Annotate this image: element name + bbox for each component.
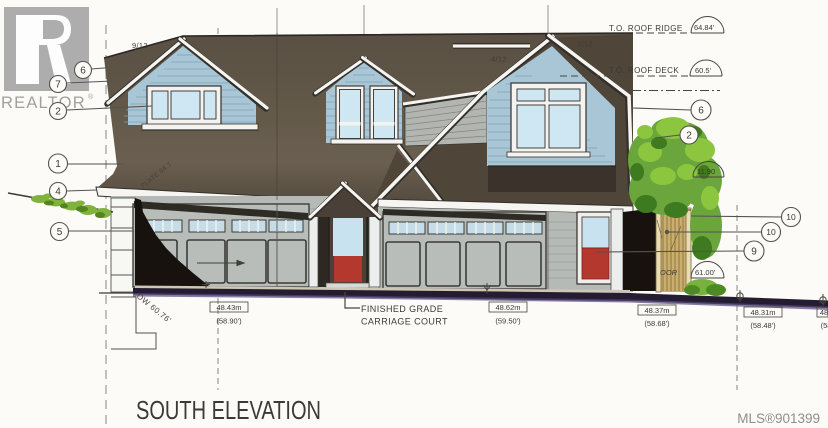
svg-text:48.31m: 48.31m [750, 308, 775, 317]
svg-text:6: 6 [80, 66, 86, 77]
svg-text:48: 48 [820, 308, 828, 317]
svg-text:®: ® [88, 93, 94, 101]
svg-text:11.90: 11.90 [697, 167, 715, 176]
svg-text:4: 4 [55, 187, 61, 198]
svg-text:9: 9 [751, 247, 757, 258]
svg-text:48.37m: 48.37m [644, 306, 669, 315]
svg-text:10: 10 [786, 212, 796, 222]
svg-text:48.43m: 48.43m [216, 303, 241, 312]
svg-text:64.84': 64.84' [694, 23, 715, 32]
svg-text:60.5': 60.5' [695, 66, 712, 75]
svg-text:T.O. ROOF RIDGE: T.O. ROOF RIDGE [609, 24, 683, 33]
svg-text:(58.90'): (58.90') [216, 317, 242, 326]
svg-text:1: 1 [55, 159, 61, 170]
svg-text:4/12: 4/12 [491, 55, 507, 64]
svg-text:6: 6 [698, 106, 704, 117]
svg-text:MLS®901399: MLS®901399 [737, 411, 820, 426]
svg-text:SOUTH ELEVATION: SOUTH ELEVATION [136, 395, 321, 425]
svg-text:61.00': 61.00' [695, 268, 716, 277]
svg-text:(58.68'): (58.68') [644, 319, 670, 328]
svg-text:2: 2 [686, 131, 692, 142]
svg-text:(58: (58 [821, 321, 828, 330]
svg-text:7: 7 [55, 80, 61, 91]
svg-text:T.O. ROOF DECK: T.O. ROOF DECK [609, 66, 679, 75]
svg-text:(58.48'): (58.48') [750, 321, 776, 330]
svg-text:5: 5 [57, 227, 63, 238]
svg-text:4/12: 4/12 [577, 40, 593, 49]
svg-text:9/12: 9/12 [132, 41, 148, 50]
svg-text:2: 2 [55, 107, 61, 118]
svg-text:(59.50'): (59.50') [495, 317, 521, 326]
svg-text:OOR: OOR [660, 268, 678, 277]
svg-text:48.62m: 48.62m [495, 303, 520, 312]
svg-text:CARRIAGE COURT: CARRIAGE COURT [361, 317, 448, 327]
svg-text:FINISHED GRADE: FINISHED GRADE [361, 304, 443, 314]
svg-text:10: 10 [766, 227, 776, 237]
